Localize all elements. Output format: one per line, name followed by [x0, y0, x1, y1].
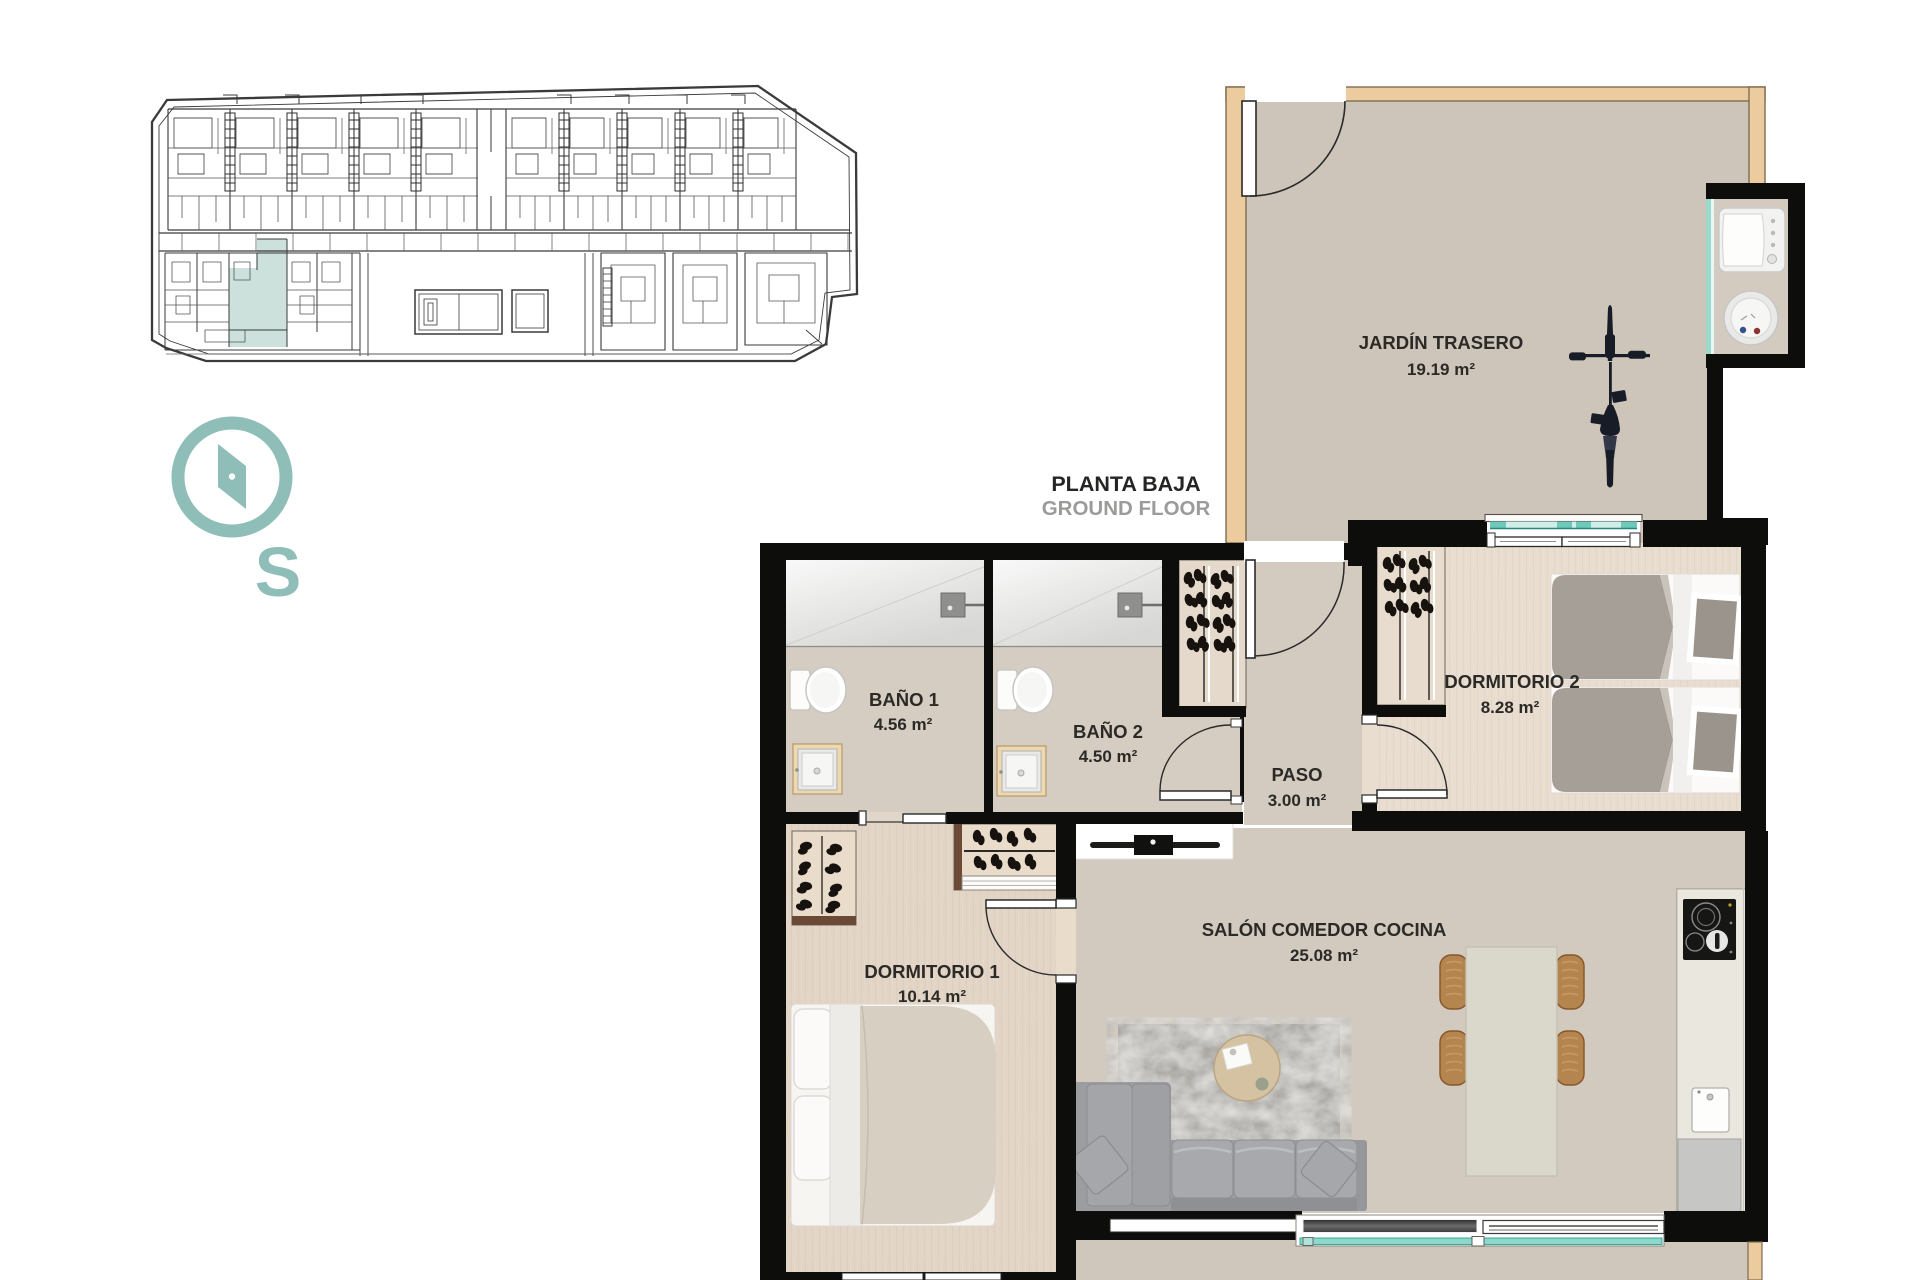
- svg-text:PLANTA BAJA: PLANTA BAJA: [1051, 472, 1200, 496]
- svg-text:3.00 m²: 3.00 m²: [1268, 791, 1327, 810]
- svg-text:19.19 m²: 19.19 m²: [1407, 360, 1475, 379]
- svg-text:10.14 m²: 10.14 m²: [898, 987, 966, 1006]
- svg-text:8.28 m²: 8.28 m²: [1481, 698, 1540, 717]
- svg-text:PASO: PASO: [1271, 764, 1322, 785]
- svg-text:4.50 m²: 4.50 m²: [1079, 747, 1138, 766]
- svg-text:SALÓN COMEDOR COCINA: SALÓN COMEDOR COCINA: [1202, 919, 1447, 940]
- svg-text:DORMITORIO 1: DORMITORIO 1: [864, 961, 999, 982]
- svg-text:25.08 m²: 25.08 m²: [1290, 946, 1358, 965]
- svg-text:4.56 m²: 4.56 m²: [874, 715, 933, 734]
- svg-text:JARDÍN TRASERO: JARDÍN TRASERO: [1359, 332, 1523, 353]
- svg-text:S: S: [255, 533, 302, 611]
- svg-text:DORMITORIO 2: DORMITORIO 2: [1444, 671, 1579, 692]
- svg-text:BAÑO 1: BAÑO 1: [869, 689, 939, 710]
- svg-text:BAÑO 2: BAÑO 2: [1073, 721, 1143, 742]
- svg-text:GROUND FLOOR: GROUND FLOOR: [1042, 497, 1211, 520]
